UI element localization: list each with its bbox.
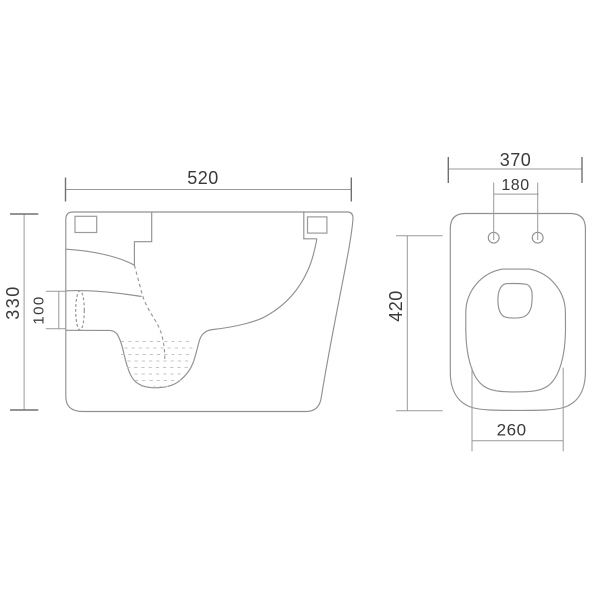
svg-text:370: 370 xyxy=(500,150,532,170)
svg-text:260: 260 xyxy=(497,421,527,440)
svg-text:520: 520 xyxy=(187,168,219,188)
svg-text:330: 330 xyxy=(3,285,23,320)
svg-text:100: 100 xyxy=(31,295,48,324)
svg-text:420: 420 xyxy=(386,290,406,322)
svg-text:180: 180 xyxy=(501,177,529,194)
